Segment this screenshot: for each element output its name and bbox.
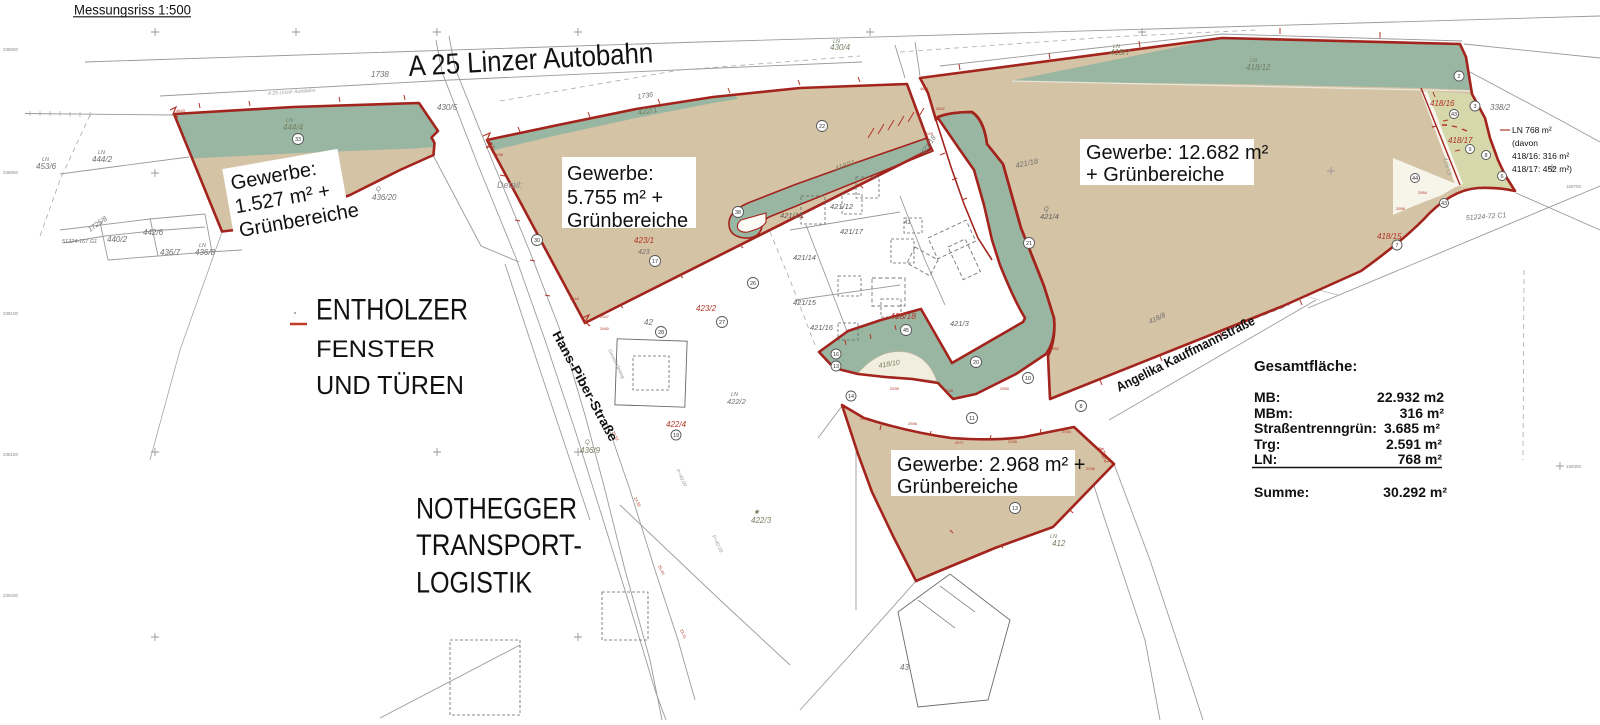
- svg-text:LN: LN: [199, 243, 206, 249]
- svg-text:238150: 238150: [3, 452, 19, 457]
- svg-text:LN: LN: [42, 157, 49, 163]
- svg-text:421/12: 421/12: [830, 202, 854, 211]
- svg-text:27: 27: [719, 320, 725, 326]
- svg-text:Grünbereiche: Grünbereiche: [567, 210, 688, 232]
- svg-text:4643: 4643: [176, 108, 186, 113]
- svg-text:422/4: 422/4: [666, 420, 687, 429]
- svg-text:Detail:: Detail:: [497, 180, 523, 190]
- svg-text:338/2: 338/2: [1490, 103, 1511, 112]
- svg-text:45: 45: [903, 328, 909, 334]
- svg-text:412: 412: [1052, 539, 1066, 548]
- svg-text:8: 8: [1079, 404, 1082, 410]
- svg-text:2950: 2950: [1000, 386, 1010, 391]
- svg-text:Summe:: Summe:: [1254, 484, 1309, 500]
- svg-text:38: 38: [735, 210, 741, 216]
- svg-text:14: 14: [848, 394, 854, 400]
- svg-text:Grünbereiche: Grünbereiche: [897, 476, 1018, 498]
- svg-text:2944: 2944: [570, 296, 580, 301]
- svg-text:41: 41: [904, 220, 911, 226]
- svg-text:Gesamtfläche:: Gesamtfläche:: [1254, 358, 1357, 375]
- svg-text:FENSTER: FENSTER: [316, 336, 435, 363]
- svg-text:418/17: 452 m²): 418/17: 452 m²): [1512, 164, 1572, 174]
- svg-text:2: 2: [1457, 74, 1460, 80]
- svg-text:4640: 4640: [486, 144, 496, 149]
- svg-text:3: 3: [1473, 104, 1476, 110]
- svg-text:418/16: 418/16: [1430, 99, 1455, 108]
- svg-text:LN: LN: [1050, 534, 1057, 540]
- svg-text:MB:: MB:: [1254, 389, 1280, 405]
- svg-text:LN: LN: [286, 118, 293, 124]
- svg-text:2936: 2936: [1086, 466, 1096, 471]
- svg-text:LN 768 m²: LN 768 m²: [1512, 125, 1552, 135]
- svg-text:LOGISTIK: LOGISTIK: [416, 567, 532, 600]
- svg-text:7: 7: [1395, 243, 1398, 249]
- svg-text:Straßentrenngrün:: Straßentrenngrün:: [1254, 420, 1377, 436]
- svg-text:20: 20: [973, 360, 979, 366]
- svg-text:Q: Q: [376, 187, 381, 193]
- svg-text:2940: 2940: [600, 326, 610, 331]
- svg-text:LN: LN: [1250, 58, 1257, 64]
- svg-text:436/20: 436/20: [372, 193, 397, 202]
- svg-text:421/15: 421/15: [793, 298, 817, 307]
- svg-text:UND TÜREN: UND TÜREN: [316, 372, 464, 400]
- svg-text:4651: 4651: [920, 86, 930, 91]
- svg-text:2956: 2956: [1396, 206, 1406, 211]
- svg-text:422/2: 422/2: [727, 397, 747, 406]
- svg-text:2948: 2948: [944, 388, 954, 393]
- svg-text:NOTHEGGER: NOTHEGGER: [416, 493, 577, 526]
- svg-text:33: 33: [295, 137, 301, 143]
- svg-text:22: 22: [819, 124, 825, 130]
- svg-text:Gewerbe: 12.682 m²: Gewerbe: 12.682 m²: [1086, 142, 1269, 164]
- svg-text:421/14: 421/14: [793, 253, 816, 262]
- svg-text:8: 8: [1484, 153, 1487, 159]
- svg-text:51224-167 G1: 51224-167 G1: [62, 239, 97, 245]
- svg-text:2.591 m²: 2.591 m²: [1386, 436, 1442, 452]
- svg-text:16: 16: [833, 352, 839, 358]
- svg-text:2934: 2934: [1062, 429, 1072, 434]
- svg-text:418/16: 316 m²: 418/16: 316 m²: [1512, 151, 1569, 161]
- svg-text:LN: LN: [1113, 44, 1120, 50]
- svg-text:Gewerbe: 2.968 m² +: Gewerbe: 2.968 m² +: [897, 454, 1085, 476]
- svg-text:43: 43: [1441, 201, 1447, 207]
- svg-text:Messungsriss 1:500: Messungsriss 1:500: [74, 2, 191, 18]
- svg-text:Q: Q: [1044, 207, 1049, 213]
- svg-text:LN: LN: [98, 150, 105, 156]
- svg-text:13: 13: [1012, 506, 1018, 512]
- svg-text:TRANSPORT-: TRANSPORT-: [416, 529, 582, 562]
- svg-text:4652: 4652: [936, 106, 946, 111]
- svg-text:418/17: 418/17: [1448, 136, 1473, 145]
- svg-text:442/6: 442/6: [143, 228, 164, 237]
- svg-text:159300: 159300: [1566, 464, 1582, 469]
- svg-text:1029: 1029: [924, 131, 934, 136]
- svg-text:159700: 159700: [1566, 184, 1582, 189]
- svg-text:3.685 m²: 3.685 m²: [1384, 420, 1440, 436]
- svg-text:11: 11: [969, 416, 975, 422]
- svg-text:26: 26: [750, 281, 756, 287]
- svg-text:LN: LN: [833, 39, 840, 45]
- svg-text:423: 423: [638, 249, 650, 256]
- svg-text:440/2: 440/2: [107, 235, 128, 244]
- svg-text:421/3: 421/3: [950, 319, 970, 328]
- svg-text:436/8: 436/8: [195, 248, 216, 257]
- svg-text:1738: 1738: [371, 70, 389, 79]
- svg-text:430/5: 430/5: [437, 103, 458, 112]
- svg-text:2947: 2947: [600, 314, 610, 319]
- svg-text:LN: LN: [731, 392, 738, 398]
- svg-text:17: 17: [652, 259, 658, 265]
- svg-text:43: 43: [1451, 112, 1457, 118]
- svg-text:444/4: 444/4: [283, 123, 304, 132]
- svg-text:423/1: 423/1: [634, 236, 654, 245]
- svg-text:444/2: 444/2: [92, 155, 113, 164]
- svg-text:238050: 238050: [3, 170, 19, 175]
- svg-text:422/3: 422/3: [751, 516, 772, 525]
- svg-text:2938: 2938: [494, 152, 504, 157]
- svg-text:Q: Q: [585, 440, 590, 446]
- svg-text:2939: 2939: [890, 386, 900, 391]
- svg-text:Gewerbe:: Gewerbe:: [567, 163, 654, 185]
- svg-text:436/9: 436/9: [580, 446, 601, 455]
- svg-text:+ Grünbereiche: + Grünbereiche: [1086, 164, 1224, 186]
- svg-text:436/7: 436/7: [160, 248, 181, 257]
- svg-text:421/4: 421/4: [1040, 212, 1059, 221]
- svg-text:2952: 2952: [1050, 346, 1060, 351]
- svg-text:2946: 2946: [908, 421, 918, 426]
- svg-text:2954: 2954: [1418, 190, 1428, 195]
- svg-text:238100: 238100: [3, 311, 19, 316]
- svg-text:453/6: 453/6: [36, 162, 57, 171]
- svg-text:Trg:: Trg:: [1254, 436, 1280, 452]
- svg-text:418/18: 418/18: [890, 311, 916, 321]
- svg-text:418/15: 418/15: [1377, 232, 1402, 241]
- svg-text:22.932 m2: 22.932 m2: [1377, 389, 1444, 405]
- svg-text:6: 6: [1500, 174, 1503, 180]
- svg-text:9: 9: [1468, 147, 1471, 153]
- svg-text:MBm:: MBm:: [1254, 405, 1293, 421]
- svg-text:21: 21: [1026, 241, 1032, 247]
- svg-text:43: 43: [900, 663, 909, 672]
- svg-text:423/2: 423/2: [696, 304, 717, 313]
- svg-text:2938: 2938: [1008, 439, 1018, 444]
- svg-text:316 m²: 316 m²: [1400, 405, 1445, 421]
- svg-text:421/16: 421/16: [810, 323, 834, 332]
- svg-text:2977: 2977: [955, 440, 965, 445]
- svg-text:10: 10: [1025, 376, 1031, 382]
- svg-text:28: 28: [658, 330, 664, 336]
- svg-text:238000: 238000: [3, 47, 19, 52]
- svg-text:42: 42: [644, 318, 653, 327]
- svg-text:19: 19: [673, 433, 679, 439]
- svg-text:2942: 2942: [860, 416, 870, 421]
- svg-text:30.292 m²: 30.292 m²: [1383, 484, 1447, 500]
- svg-text:30: 30: [534, 238, 540, 244]
- svg-text:(davon: (davon: [1512, 138, 1538, 148]
- svg-text:238200: 238200: [3, 593, 19, 598]
- svg-text:768 m²: 768 m²: [1398, 451, 1443, 467]
- svg-text:13: 13: [833, 364, 839, 370]
- svg-text:421/17: 421/17: [840, 227, 864, 236]
- svg-text:418/12: 418/12: [1246, 63, 1271, 72]
- svg-text:ENTHOLZER: ENTHOLZER: [316, 294, 468, 327]
- svg-text:5.755 m² +: 5.755 m² +: [567, 187, 663, 209]
- svg-text:LN:: LN:: [1254, 451, 1277, 467]
- svg-text:44: 44: [1412, 176, 1418, 182]
